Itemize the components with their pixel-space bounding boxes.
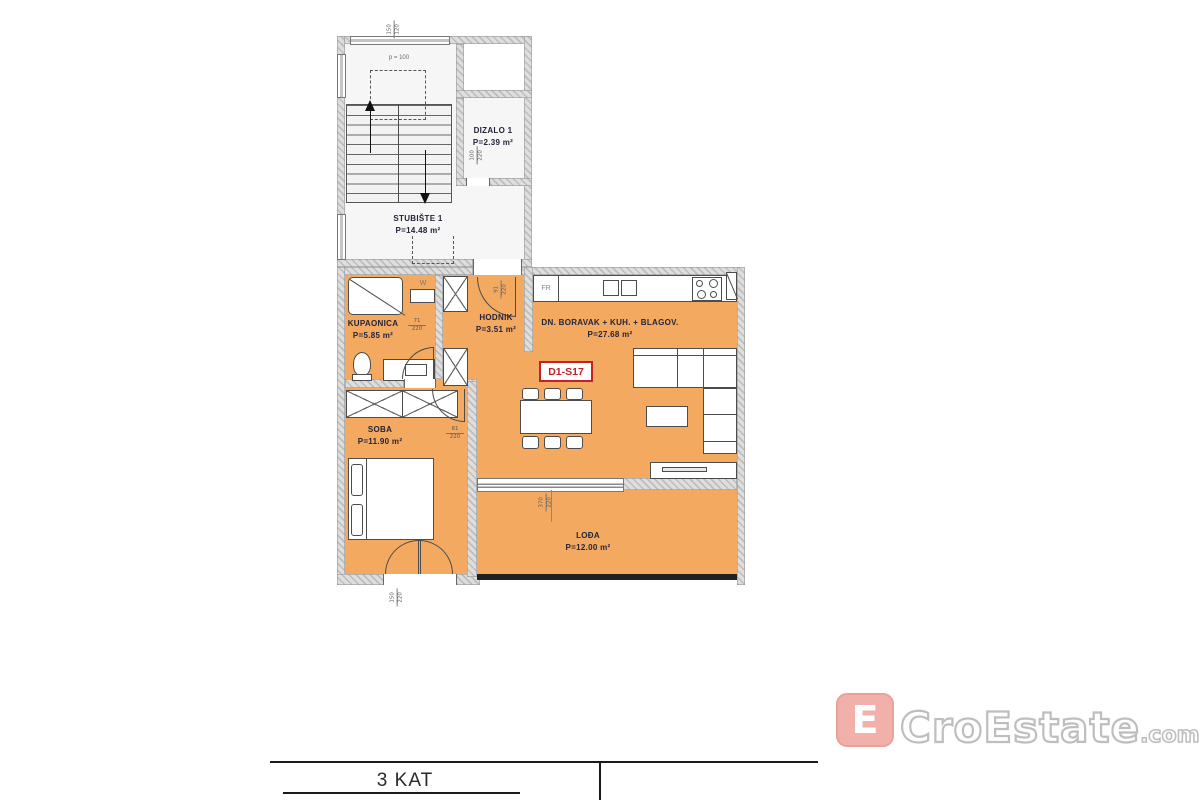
bedroom-wardrobe-left — [346, 390, 403, 418]
down-arrow-stem — [425, 150, 426, 194]
bedroom-door-leaf — [464, 389, 465, 422]
elevator-door-opening — [466, 178, 490, 186]
washer-label: W — [412, 280, 434, 287]
sofa-back-section — [633, 348, 737, 388]
stair-opening-dashed — [370, 70, 426, 120]
dim-elevator-door: 100 220 — [470, 146, 485, 164]
kitchen-sink-left — [603, 280, 619, 296]
recess-wall-bottom — [456, 90, 532, 98]
bathroom-wall-right — [435, 275, 443, 379]
bathroom-door-leaf — [433, 347, 434, 379]
balcony-door-opening — [383, 574, 457, 585]
stairwell-label: STUBIŠTE 1 P=14.48 m² — [393, 213, 442, 236]
dim-bathroom-door: 71 220 — [408, 318, 426, 333]
croestate-watermark: E CroEstate .com — [836, 693, 1200, 752]
stairwell-recess — [464, 44, 524, 90]
apt-wall-top-left — [337, 267, 473, 275]
bedroom-wall-right — [467, 381, 477, 577]
floor-title: 3 KAT — [377, 770, 433, 792]
sofa-cushion-divider — [703, 349, 704, 387]
down-arrow-icon — [420, 193, 430, 204]
dining-table — [520, 400, 592, 434]
stove-burner-3 — [697, 290, 706, 299]
hall-closet-lower — [443, 348, 468, 386]
dining-chair — [566, 436, 583, 449]
fridge: FR — [533, 275, 559, 302]
hall-kitchen-wall — [524, 267, 533, 352]
hall-closet-upper — [443, 276, 468, 312]
stove-burner-4 — [710, 291, 717, 298]
dining-chair — [522, 388, 539, 400]
stairwell-wall-right — [524, 36, 532, 267]
sofa-cushion-divider — [704, 414, 737, 415]
bedroom-label: SOBA P=11.90 m² — [358, 424, 403, 447]
apt-wall-right — [737, 267, 745, 585]
dining-chair — [522, 436, 539, 449]
pillow — [351, 464, 363, 496]
dim-bedroom-door: 81 220 — [446, 426, 464, 441]
stove-burner-1 — [696, 280, 703, 287]
titleblock-line-top — [270, 761, 818, 763]
stairwell-window-left-upper — [337, 54, 346, 98]
dim-entrance-door: 91 220 — [494, 280, 509, 298]
apt-wall-top-right — [520, 267, 745, 275]
apt-wall-left — [337, 267, 345, 585]
sofa-cushion-divider — [704, 441, 737, 442]
sofa-backrest-line — [634, 355, 737, 356]
kitchen-sink-right — [621, 280, 637, 296]
croestate-logo-text: CroEstate .com — [900, 703, 1200, 752]
tv — [662, 467, 707, 472]
bathroom-door-opening — [404, 379, 436, 388]
floor-plan-canvas: 150 120 p = 100 DIZALO 1 P=2.39 m² 100 2… — [0, 0, 1200, 800]
dim-loggia-door: 370 220 — [539, 493, 554, 511]
dim-balcony-door: 150 220 — [390, 588, 405, 606]
pillow — [351, 504, 363, 536]
up-arrow-stem — [370, 111, 371, 153]
croestate-logo-icon: E — [836, 693, 894, 747]
brand-tld: .com — [1140, 723, 1199, 748]
stairwell-dashed-zone — [412, 236, 454, 264]
sofa-cushion-divider — [677, 349, 678, 387]
up-arrow-icon — [365, 100, 375, 111]
toilet-tank — [352, 374, 372, 381]
living-label: DN. BORAVAK + KUH. + BLAGOV. P=27.68 m² — [541, 317, 678, 340]
dining-chair — [544, 436, 561, 449]
loggia-edge — [477, 574, 737, 580]
unit-badge: D1-S17 — [539, 361, 593, 382]
elevator-label: DIZALO 1 P=2.39 m² — [473, 125, 513, 148]
balcony-door-leaf — [418, 540, 419, 574]
stove-burner-2 — [709, 279, 718, 288]
balcony-door-leaf — [420, 540, 421, 574]
washing-machine — [410, 289, 435, 303]
entrance-opening — [473, 259, 522, 275]
brand-name: CroEstate — [900, 703, 1140, 752]
dining-chair — [544, 388, 561, 400]
hall-label: HODNIK P=3.51 m² — [476, 312, 516, 335]
bed-headboard-line — [366, 459, 367, 539]
titleblock-line-vertical — [599, 761, 601, 800]
dim-stair-window: 150 120 — [387, 20, 402, 38]
toilet — [353, 352, 371, 376]
loggia-wall-top — [622, 478, 737, 490]
stairwell-window-left-lower — [337, 214, 346, 260]
entrance-door-leaf — [515, 277, 516, 317]
elevator-wall-left — [456, 98, 464, 186]
loggia-label: LOĐA P=12.00 m² — [565, 530, 610, 553]
bathroom-label: KUPAONICA P=5.85 m² — [348, 318, 399, 341]
dining-chair — [566, 388, 583, 400]
parapet-note: p = 100 — [389, 55, 409, 61]
coffee-table — [646, 406, 688, 427]
sofa-side-section — [703, 388, 737, 454]
floor-title-underline — [283, 792, 520, 794]
